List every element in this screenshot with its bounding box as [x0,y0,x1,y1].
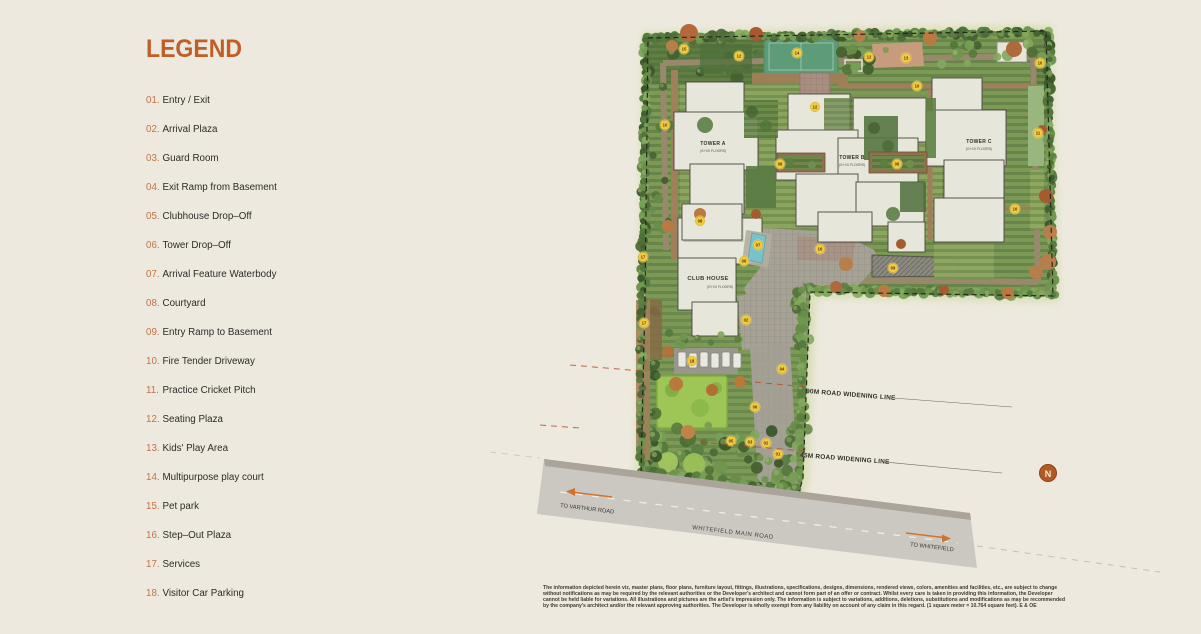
svg-text:02.: 02. [146,124,160,135]
svg-text:Entry / Exit: Entry / Exit [163,95,211,106]
svg-text:06: 06 [742,259,747,264]
svg-text:Practice Cricket Pitch: Practice Cricket Pitch [163,385,256,396]
svg-text:Multipurpose play court: Multipurpose play court [163,472,265,483]
svg-text:02: 02 [764,441,769,446]
svg-text:17.: 17. [146,559,160,570]
svg-text:12.: 12. [146,414,160,425]
svg-text:10: 10 [915,84,920,89]
svg-text:11.: 11. [146,385,159,396]
svg-text:16: 16 [1013,207,1018,212]
svg-text:N: N [1045,469,1052,479]
svg-text:13: 13 [904,56,909,61]
svg-text:11: 11 [1036,131,1041,136]
svg-text:08.: 08. [146,298,160,309]
svg-text:02: 02 [744,318,749,323]
svg-text:09.: 09. [146,327,160,338]
svg-text:05: 05 [729,439,734,444]
svg-text:Exit Ramp from Basement: Exit Ramp from Basement [163,182,278,193]
svg-text:07.: 07. [146,269,160,280]
svg-text:Seating Plaza: Seating Plaza [163,414,224,425]
svg-text:10: 10 [663,123,668,128]
svg-text:17: 17 [642,321,647,326]
svg-text:Kids' Play Area: Kids' Play Area [163,443,229,454]
svg-text:03.: 03. [146,153,160,164]
svg-text:08: 08 [778,162,783,167]
svg-text:10.: 10. [146,356,160,367]
svg-text:Courtyard: Courtyard [163,298,206,309]
svg-text:Entry Ramp to Basement: Entry Ramp to Basement [163,327,273,338]
svg-text:16: 16 [818,247,823,252]
svg-text:18.: 18. [146,588,160,599]
svg-text:12: 12 [813,105,818,110]
svg-text:13.: 13. [146,443,160,454]
svg-text:12: 12 [867,55,872,60]
svg-text:Arrival Plaza: Arrival Plaza [163,124,219,135]
svg-text:15: 15 [682,47,687,52]
svg-text:Pet park: Pet park [163,501,200,512]
svg-text:03: 03 [748,440,753,445]
svg-text:15.: 15. [146,501,160,512]
svg-text:01.: 01. [146,95,160,106]
svg-text:08: 08 [895,162,900,167]
svg-text:05.: 05. [146,211,160,222]
svg-text:10: 10 [1038,61,1043,66]
svg-text:Fire Tender Driveway: Fire Tender Driveway [163,356,255,367]
svg-text:04.: 04. [146,182,160,193]
svg-text:14: 14 [795,51,800,56]
svg-text:LEGEND: LEGEND [146,35,242,63]
svg-text:12: 12 [737,54,742,59]
svg-text:Arrival Feature Waterbody: Arrival Feature Waterbody [163,269,277,280]
svg-text:06.: 06. [146,240,160,251]
svg-text:01: 01 [776,452,781,457]
svg-text:Clubhouse Drop–Off: Clubhouse Drop–Off [163,211,252,222]
svg-text:08: 08 [698,219,703,224]
svg-text:Services: Services [163,559,201,570]
svg-text:Guard Room: Guard Room [163,153,219,164]
svg-text:04: 04 [780,367,785,372]
svg-text:14.: 14. [146,472,160,483]
svg-text:by the company's architect and: by the company's architect and/or the re… [543,603,1037,609]
svg-text:06: 06 [753,405,758,410]
svg-text:09: 09 [891,266,896,271]
svg-text:Step–Out Plaza: Step–Out Plaza [163,530,232,541]
svg-text:17: 17 [641,255,646,260]
svg-text:Visitor Car Parking: Visitor Car Parking [163,588,245,599]
svg-text:Tower Drop–Off: Tower Drop–Off [163,240,232,251]
svg-text:16.: 16. [146,530,160,541]
svg-text:18: 18 [690,359,695,364]
svg-text:07: 07 [756,243,761,248]
